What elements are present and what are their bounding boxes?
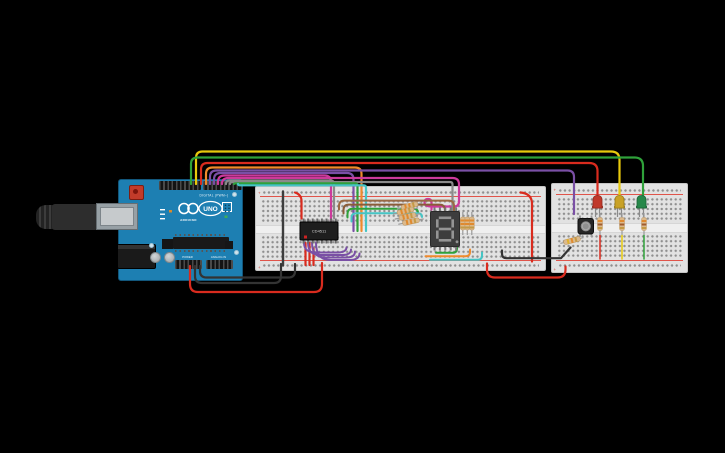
wire-red-rail-to-ic[interactable] — [295, 193, 302, 219]
icsp-outline — [223, 203, 232, 212]
wire-gnd-to-rail-1[interactable] — [195, 264, 281, 283]
rail-plus-mark: + — [258, 265, 261, 270]
on-led — [225, 216, 228, 219]
digital-label: DIGITAL (PWM~) — [200, 194, 229, 198]
segment-resistors-right[interactable] — [460, 212, 474, 235]
red-led[interactable] — [592, 196, 603, 218]
power-label: POWER — [182, 255, 193, 259]
arduino-brand: ARDUINO — [180, 218, 197, 222]
seven-segment-display[interactable] — [431, 208, 460, 251]
rail-plus-mark: + — [554, 188, 557, 193]
rail-plus-mark: + — [554, 267, 557, 272]
tx-led — [169, 210, 172, 213]
wire-gray-to-display[interactable] — [230, 182, 453, 212]
green-led[interactable] — [636, 196, 647, 218]
arduino-silkscreen: DIGITAL (PWM~) ARDUINO UNO POWER ANALOG … — [160, 194, 232, 260]
arduino-title: UNO — [203, 206, 217, 213]
pin1-dot — [304, 236, 307, 239]
wire-black-to-led-board[interactable] — [502, 248, 571, 259]
circuit-canvas: CD4511 — [0, 0, 725, 453]
yellow-led[interactable] — [614, 196, 625, 218]
decoder-ic[interactable]: CD4511 — [300, 219, 338, 244]
ic-label: CD4511 — [312, 229, 327, 234]
wire-red-right-bridge[interactable] — [521, 193, 533, 262]
analog-label: ANALOG IN — [211, 255, 226, 259]
pushbutton[interactable] — [578, 216, 594, 238]
rail-plus-mark: + — [258, 191, 261, 196]
